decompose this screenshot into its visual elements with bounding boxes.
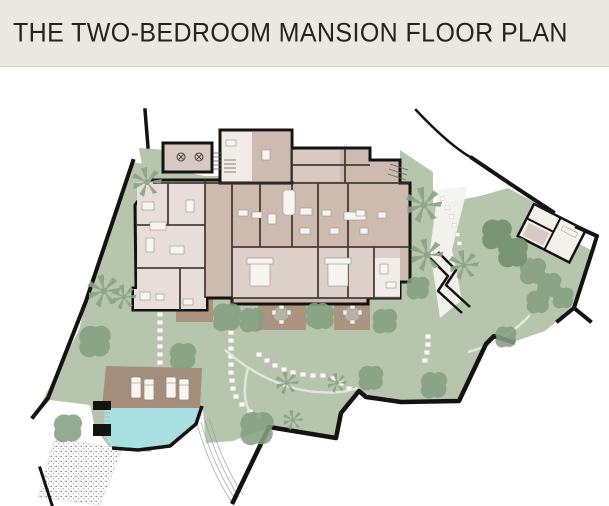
beach-area <box>38 438 122 505</box>
floor-plan-image <box>0 67 609 506</box>
page-title: THE TWO-BEDROOM MANSION FLOOR PLAN <box>13 17 568 48</box>
page-header: THE TWO-BEDROOM MANSION FLOOR PLAN <box>0 0 609 67</box>
swimming-pool <box>104 406 202 450</box>
floor-plan-canvas <box>0 67 609 506</box>
main-villa-building <box>133 130 410 310</box>
garage-room <box>163 143 212 172</box>
pool-deck <box>102 366 202 410</box>
